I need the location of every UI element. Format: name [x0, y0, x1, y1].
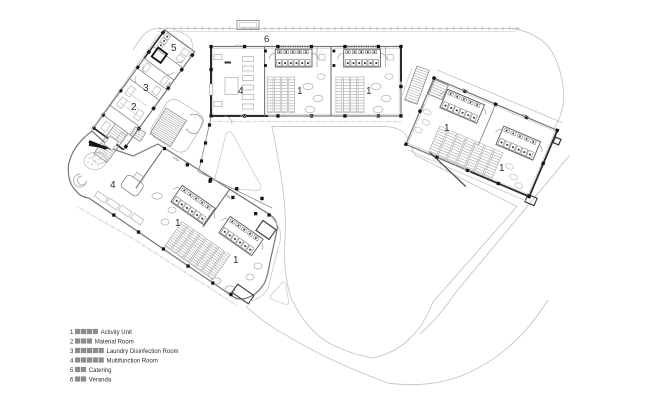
svg-text:1: 1 [444, 123, 450, 134]
svg-text:1: 1 [175, 218, 181, 229]
svg-text:Material Room: Material Room [95, 340, 134, 346]
svg-text:4: 4 [238, 86, 244, 97]
svg-text:1: 1 [366, 86, 372, 97]
svg-text:1: 1 [297, 86, 303, 97]
svg-text:Catering: Catering [89, 368, 112, 374]
svg-text:Activity Unit: Activity Unit [101, 330, 133, 336]
svg-text:Laundry Disinfection Room: Laundry Disinfection Room [107, 349, 179, 355]
svg-text:1: 1 [233, 255, 239, 266]
svg-text:6: 6 [264, 34, 269, 45]
svg-text:1: 1 [499, 163, 505, 174]
svg-text:3: 3 [143, 83, 149, 94]
svg-text:2: 2 [131, 102, 137, 113]
svg-text:Veranda: Veranda [89, 378, 112, 384]
svg-text:4: 4 [110, 180, 116, 191]
svg-text:5: 5 [171, 43, 177, 54]
svg-text:Multifunction Room: Multifunction Room [107, 359, 158, 365]
